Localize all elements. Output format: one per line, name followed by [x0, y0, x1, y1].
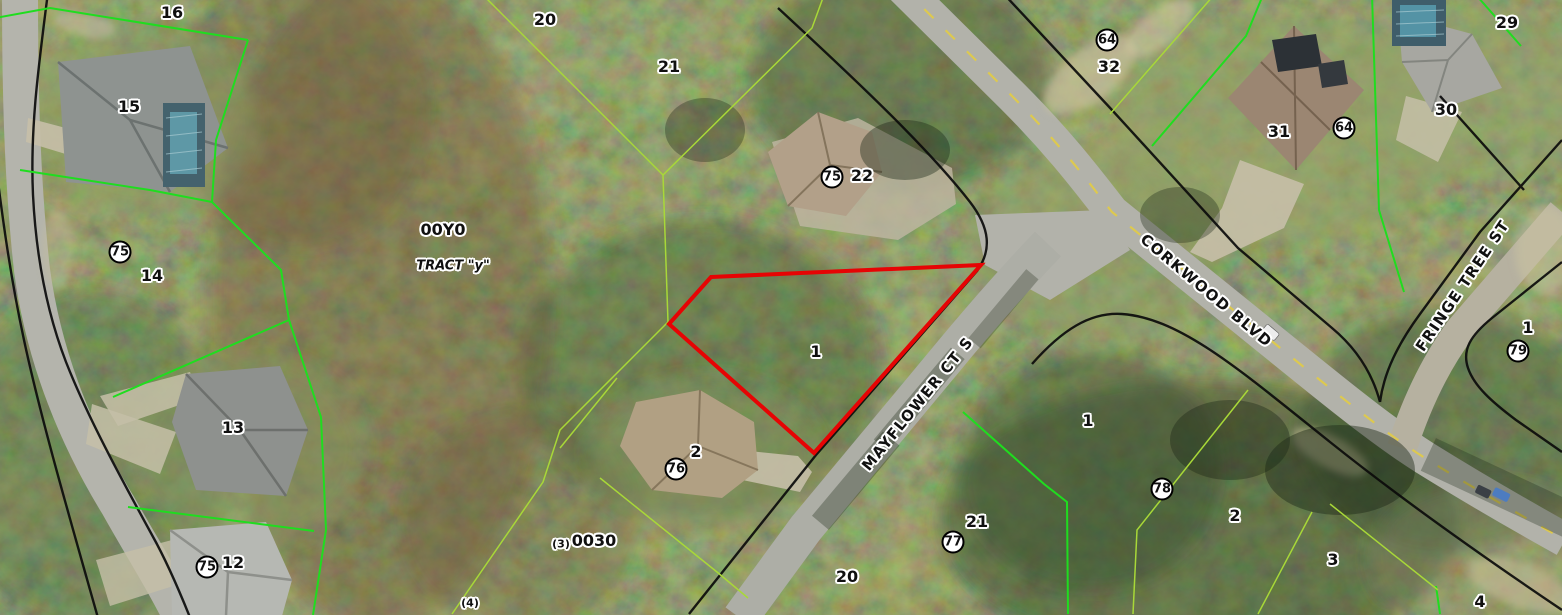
aerial-imagery [0, 0, 1562, 615]
map-viewport[interactable]: 16152021751400Y0TRACT "y"752264323164293… [0, 0, 1562, 615]
solar-panels-icon [1272, 34, 1322, 72]
house-roof-13 [172, 366, 308, 496]
